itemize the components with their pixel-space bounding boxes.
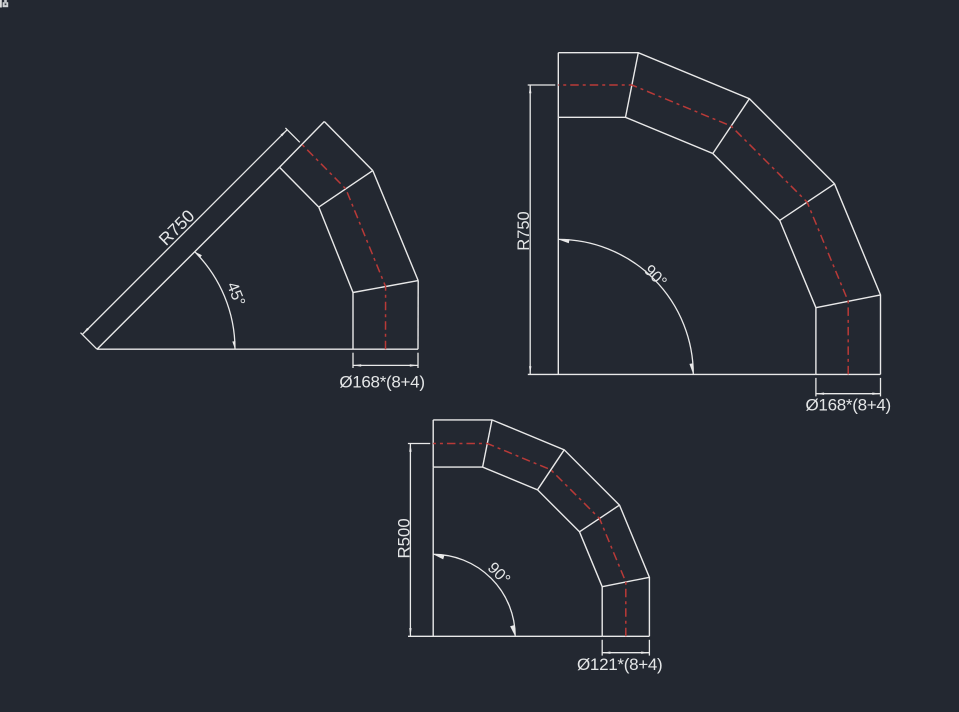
- svg-text:Ø168*(8+4): Ø168*(8+4): [806, 395, 891, 414]
- svg-text:R750: R750: [515, 211, 533, 250]
- svg-text:Ø168*(8+4): Ø168*(8+4): [339, 372, 424, 391]
- svg-text:Ø121*(8+4): Ø121*(8+4): [577, 655, 662, 674]
- svg-text:R500: R500: [394, 518, 413, 558]
